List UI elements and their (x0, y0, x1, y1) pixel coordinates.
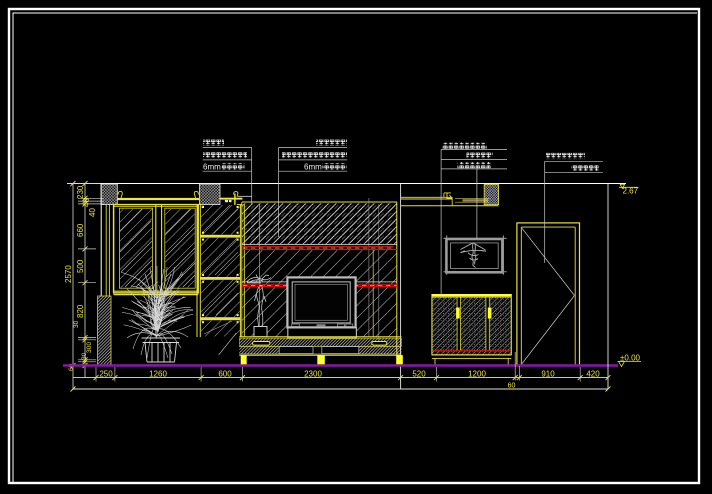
svg-text:6mm: 6mm (304, 163, 322, 172)
svg-text:2.67: 2.67 (623, 187, 639, 196)
svg-text:2570: 2570 (64, 265, 73, 283)
svg-text:2300: 2300 (304, 370, 322, 379)
svg-text:40: 40 (82, 198, 91, 207)
svg-text:600: 600 (218, 370, 232, 379)
svg-text:820: 820 (76, 304, 85, 318)
svg-text:30: 30 (73, 320, 80, 328)
svg-text:250: 250 (99, 370, 113, 379)
svg-text:660: 660 (76, 223, 85, 237)
svg-text:30: 30 (81, 352, 88, 360)
svg-text:40: 40 (88, 208, 97, 217)
svg-text:300: 300 (86, 342, 93, 353)
svg-text:420: 420 (586, 370, 600, 379)
svg-text:6mm: 6mm (203, 163, 221, 172)
svg-text:910: 910 (541, 370, 555, 379)
svg-text:520: 520 (412, 370, 426, 379)
svg-text:1200: 1200 (468, 370, 486, 379)
svg-text:1260: 1260 (149, 370, 167, 379)
svg-text:60: 60 (508, 383, 516, 390)
svg-text:500: 500 (76, 259, 85, 273)
svg-text:230: 230 (76, 185, 85, 199)
